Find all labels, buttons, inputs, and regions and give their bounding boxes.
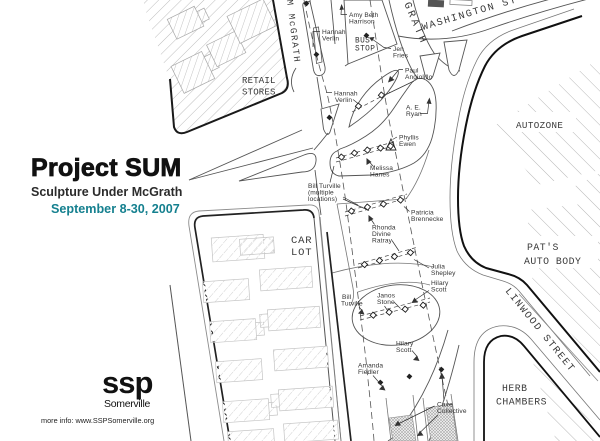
svg-text:ssp: ssp <box>102 365 152 400</box>
svg-text:Fries: Fries <box>393 53 409 60</box>
svg-text:locations): locations) <box>308 196 337 203</box>
svg-text:more info: www.SSPSomerville.o: more info: www.SSPSomerville.org <box>41 416 154 425</box>
svg-text:Scott: Scott <box>431 287 447 294</box>
svg-text:CHAMBERS: CHAMBERS <box>496 397 547 408</box>
svg-text:Ratray: Ratray <box>372 238 393 245</box>
svg-text:Stone: Stone <box>377 299 395 306</box>
svg-text:September 8-30, 2007: September 8-30, 2007 <box>51 202 180 216</box>
svg-text:CAR: CAR <box>291 235 312 247</box>
svg-text:Brennecke: Brennecke <box>411 216 444 223</box>
svg-text:LOT: LOT <box>291 247 312 259</box>
svg-text:PAT'S: PAT'S <box>527 242 559 253</box>
svg-text:STORES: STORES <box>242 88 276 98</box>
svg-text:Ryan: Ryan <box>406 111 422 118</box>
svg-text:AUTO BODY: AUTO BODY <box>524 256 581 267</box>
svg-text:Hanes: Hanes <box>370 172 390 179</box>
svg-text:Verlin: Verlin <box>335 97 352 104</box>
svg-text:RETAIL: RETAIL <box>242 76 276 86</box>
svg-text:STOP: STOP <box>355 46 375 54</box>
svg-text:BUS: BUS <box>355 38 370 46</box>
svg-text:OM McGRATH: OM McGRATH <box>283 0 303 64</box>
svg-text:AUTOZONE: AUTOZONE <box>516 120 563 131</box>
svg-text:Project SUM: Project SUM <box>31 154 182 182</box>
svg-text:Scott: Scott <box>396 347 412 354</box>
svg-text:Shepley: Shepley <box>431 270 456 277</box>
svg-text:Collective: Collective <box>437 408 467 415</box>
svg-text:Verlin: Verlin <box>322 36 339 43</box>
svg-text:Fiedler: Fiedler <box>358 369 380 376</box>
svg-text:Somerville: Somerville <box>104 398 150 410</box>
svg-text:Harrison: Harrison <box>349 19 375 26</box>
svg-text:Angiolillo: Angiolillo <box>405 74 433 81</box>
svg-text:HERB: HERB <box>502 383 528 394</box>
svg-text:Ewen: Ewen <box>399 141 416 148</box>
svg-text:Sculpture Under McGrath: Sculpture Under McGrath <box>31 185 182 199</box>
svg-text:Turville: Turville <box>341 301 363 308</box>
